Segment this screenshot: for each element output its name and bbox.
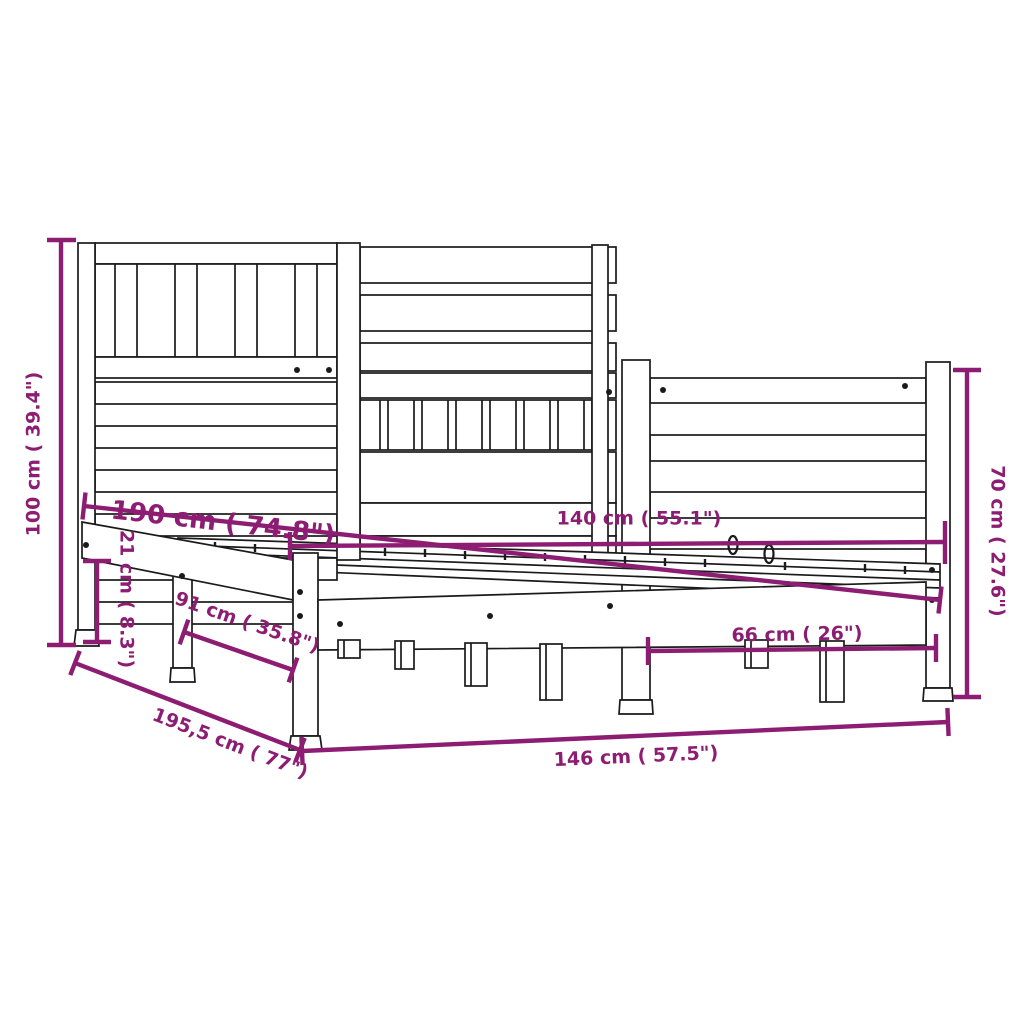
bed-frame xyxy=(74,243,953,750)
headboard-right-post xyxy=(337,243,360,560)
product-dimension-diagram: 100 cm ( 39.4") 190 cm ( 74.8") 21 cm ( … xyxy=(0,0,1024,1024)
dimension-label-footboard-height: 70 cm ( 27.6") xyxy=(988,465,1007,617)
headboard-top-rail xyxy=(95,243,337,264)
dimension-line-footboard-height xyxy=(953,370,981,697)
dimension-line-headboard-height xyxy=(47,240,76,645)
headboard-slat-row xyxy=(95,264,337,357)
dimension-label-side-rail-height: 21 cm ( 8.3") xyxy=(117,530,136,668)
dimension-label-footboard-inner-width: 66 cm ( 26") xyxy=(731,624,862,645)
dimension-label-mattress-width: 140 cm ( 55.1") xyxy=(557,510,722,529)
dimension-label-headboard-height: 100 cm ( 39.4") xyxy=(25,372,44,537)
headboard-mid-rail xyxy=(95,357,337,378)
footboard xyxy=(619,360,953,714)
